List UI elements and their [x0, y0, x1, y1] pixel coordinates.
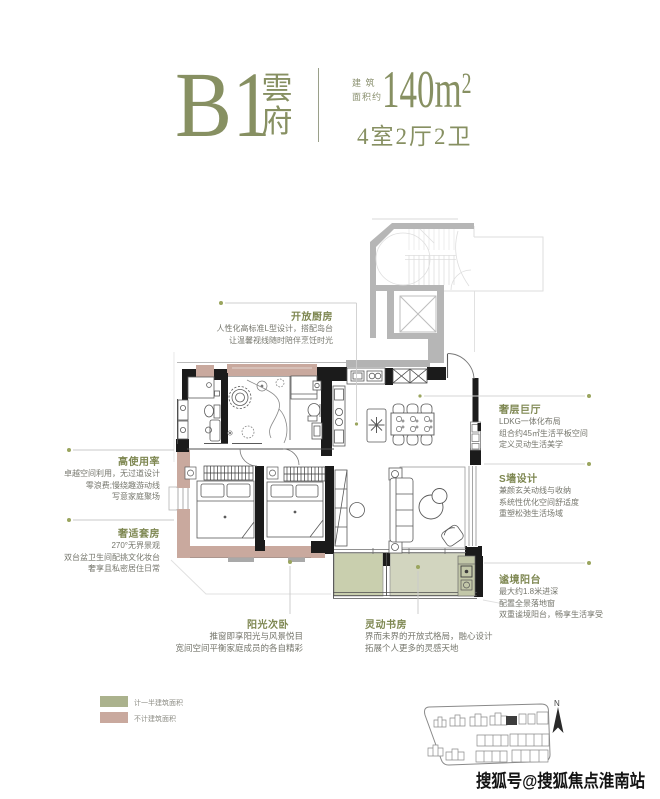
svg-text:N: N [554, 699, 560, 708]
